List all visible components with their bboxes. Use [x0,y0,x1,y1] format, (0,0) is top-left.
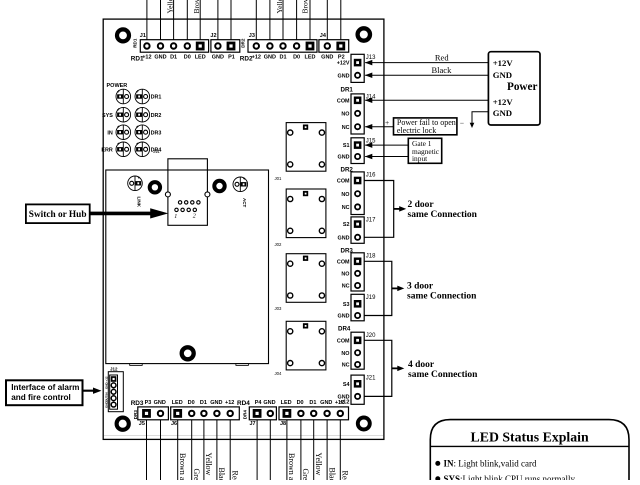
svg-text:DR2: DR2 [151,113,162,119]
svg-text:4 door: 4 door [408,360,435,370]
svg-text:+12V: +12V [337,61,350,67]
svg-text:GND: GND [338,314,350,320]
svg-text:and fire control: and fire control [11,393,71,402]
svg-text:J20: J20 [366,333,376,339]
svg-text:+: + [136,89,139,94]
svg-text:J7: J7 [250,421,256,427]
svg-text:J6: J6 [171,421,177,427]
svg-text:COM: COM [337,259,350,265]
svg-text:+12: +12 [142,54,151,60]
svg-text:Interface of alarm: Interface of alarm [11,383,79,392]
svg-text:DR1: DR1 [341,86,354,93]
svg-text:NC: NC [342,205,350,211]
svg-text:COM: COM [337,98,350,104]
svg-text:GND: GND [264,54,276,60]
svg-text:S1: S1 [343,143,350,149]
svg-text:GND: GND [104,382,108,390]
svg-text:NC: NC [342,363,350,369]
svg-text:J5: J5 [139,421,145,427]
svg-text:+: + [136,125,139,130]
svg-text:GND: GND [338,235,350,241]
svg-text:J03: J03 [275,306,283,311]
svg-text:RD1: RD1 [133,38,138,48]
svg-text:J4: J4 [320,33,327,39]
svg-text:DR3: DR3 [133,410,138,420]
svg-text:same Connection: same Connection [408,210,478,220]
svg-text:input: input [412,154,428,163]
svg-text:Black: Black [217,468,226,481]
svg-text:+: + [385,118,389,127]
svg-text:GND: GND [104,401,108,409]
svg-text:DR2: DR2 [240,38,245,48]
svg-text:Red: Red [435,52,449,62]
svg-text:NO: NO [341,112,349,118]
svg-text:P3: P3 [145,400,152,406]
svg-text:+12: +12 [252,54,261,60]
svg-text:Black: Black [327,468,336,481]
svg-text:+12: +12 [340,399,350,405]
svg-text:SYS: SYS [102,113,113,119]
svg-text:S4: S4 [343,382,350,388]
svg-text:same Connection: same Connection [408,370,478,380]
svg-text:RD3: RD3 [131,400,144,407]
svg-text:D1: D1 [200,400,207,406]
svg-text:DR4: DR4 [338,325,351,332]
svg-text:J19: J19 [366,295,376,301]
svg-text:ACT: ACT [242,198,247,207]
svg-text:J3: J3 [249,33,255,39]
svg-text:3 door: 3 door [407,281,434,291]
svg-text:GND: GND [338,155,350,161]
svg-text:OUT: OUT [104,396,108,403]
svg-text:+12V: +12V [493,58,514,68]
svg-text:Brown an: Brown an [178,453,187,480]
svg-text:Power: Power [507,81,537,93]
svg-text:Switch or Hub: Switch or Hub [29,210,87,220]
svg-text:LED Status Explain: LED Status Explain [471,430,589,445]
svg-text:J1: J1 [140,33,146,39]
svg-text:GND: GND [154,54,166,60]
svg-text:J21: J21 [366,376,376,382]
svg-text:NO: NO [341,272,349,278]
svg-text:Red: Red [231,471,240,481]
svg-text:COM: COM [337,338,350,344]
svg-text:RD4: RD4 [237,400,250,407]
svg-text:+: + [117,125,120,130]
svg-text:+12: +12 [225,400,234,406]
svg-text:+: + [136,142,139,147]
svg-text:D0: D0 [184,54,191,60]
svg-text:NC: NC [342,125,350,131]
svg-text:S3: S3 [343,302,350,308]
svg-text:IN: Light blink,valid card: IN: Light blink,valid card [444,459,537,469]
svg-text:P4: P4 [255,400,263,406]
svg-text:J11: J11 [153,149,160,154]
svg-text:IN: IN [104,393,108,396]
svg-text:+12V: +12V [493,97,514,107]
svg-text:J04: J04 [275,371,283,376]
svg-text:J13: J13 [366,55,376,61]
svg-text:Brown: Brown [192,0,201,14]
svg-text:D1: D1 [170,54,177,60]
svg-text:DR1: DR1 [151,95,162,101]
svg-text:D0: D0 [188,400,195,406]
svg-text:DR3: DR3 [151,130,162,136]
svg-text:NC: NC [342,284,350,290]
svg-text:GND: GND [263,400,275,406]
svg-text:Yellow: Yellow [166,0,175,14]
svg-text:RD1: RD1 [131,56,144,63]
svg-text:P2: P2 [338,54,345,60]
svg-text:Green: Green [301,469,310,481]
svg-text:−: − [460,119,464,128]
svg-text:GND: GND [493,108,512,118]
svg-text:GND: GND [493,70,512,80]
svg-text:LED: LED [172,400,183,406]
svg-text:DR4: DR4 [243,410,248,420]
svg-text:+: + [117,89,120,94]
svg-text:2 door: 2 door [408,200,435,210]
svg-text:D0: D0 [293,54,300,60]
svg-text:LED: LED [195,54,206,60]
svg-text:J01: J01 [275,176,283,181]
svg-text:P1: P1 [228,54,235,60]
svg-text:LED: LED [305,54,316,60]
svg-text:ERR: ERR [101,148,112,154]
svg-text:same Connection: same Connection [407,291,477,301]
svg-text:electric lock: electric lock [397,126,436,135]
svg-text:GND: GND [210,400,222,406]
svg-text:2: 2 [193,214,196,220]
svg-text:D0: D0 [297,400,304,406]
svg-text:LINK: LINK [137,197,142,208]
svg-text:GND: GND [320,400,332,406]
svg-text:J17: J17 [366,218,376,224]
svg-text:J12: J12 [110,366,118,371]
svg-text:Brown an: Brown an [287,453,296,480]
svg-text:RD2: RD2 [240,56,253,63]
svg-text:Yellow: Yellow [275,0,284,14]
svg-text:Red: Red [341,471,350,481]
svg-text:+: + [117,142,120,147]
svg-text:Green: Green [192,469,201,481]
svg-text:+: + [243,177,246,182]
svg-text:Yellow: Yellow [314,453,323,476]
svg-text:J2: J2 [210,33,216,39]
svg-text:+: + [117,107,120,112]
svg-text:Brown: Brown [301,0,310,14]
svg-text:+: + [138,176,141,181]
svg-text:S2: S2 [343,222,350,228]
svg-text:1: 1 [174,214,177,220]
svg-text:GND: GND [154,400,166,406]
svg-text:+12: +12 [104,376,108,381]
svg-text:COM: COM [337,179,350,185]
svg-text:IN: IN [107,130,112,136]
svg-text:NO: NO [341,192,349,198]
svg-text:J18: J18 [366,253,376,259]
svg-text:GND: GND [338,73,350,79]
svg-text:Black: Black [432,65,453,75]
svg-text:SYS:Light blink,CPU runs norma: SYS:Light blink,CPU runs normally [444,474,576,480]
svg-text:J8: J8 [280,421,286,427]
svg-text:GND: GND [321,54,333,60]
svg-text:Yellow: Yellow [204,453,213,476]
svg-text:D1: D1 [309,400,316,406]
svg-text:+: + [136,107,139,112]
svg-text:D1: D1 [279,54,286,60]
svg-text:J02: J02 [275,242,283,247]
svg-text:J16: J16 [366,173,376,179]
svg-text:NO: NO [341,351,349,357]
svg-text:GND: GND [212,54,224,60]
svg-text:LED: LED [281,400,292,406]
